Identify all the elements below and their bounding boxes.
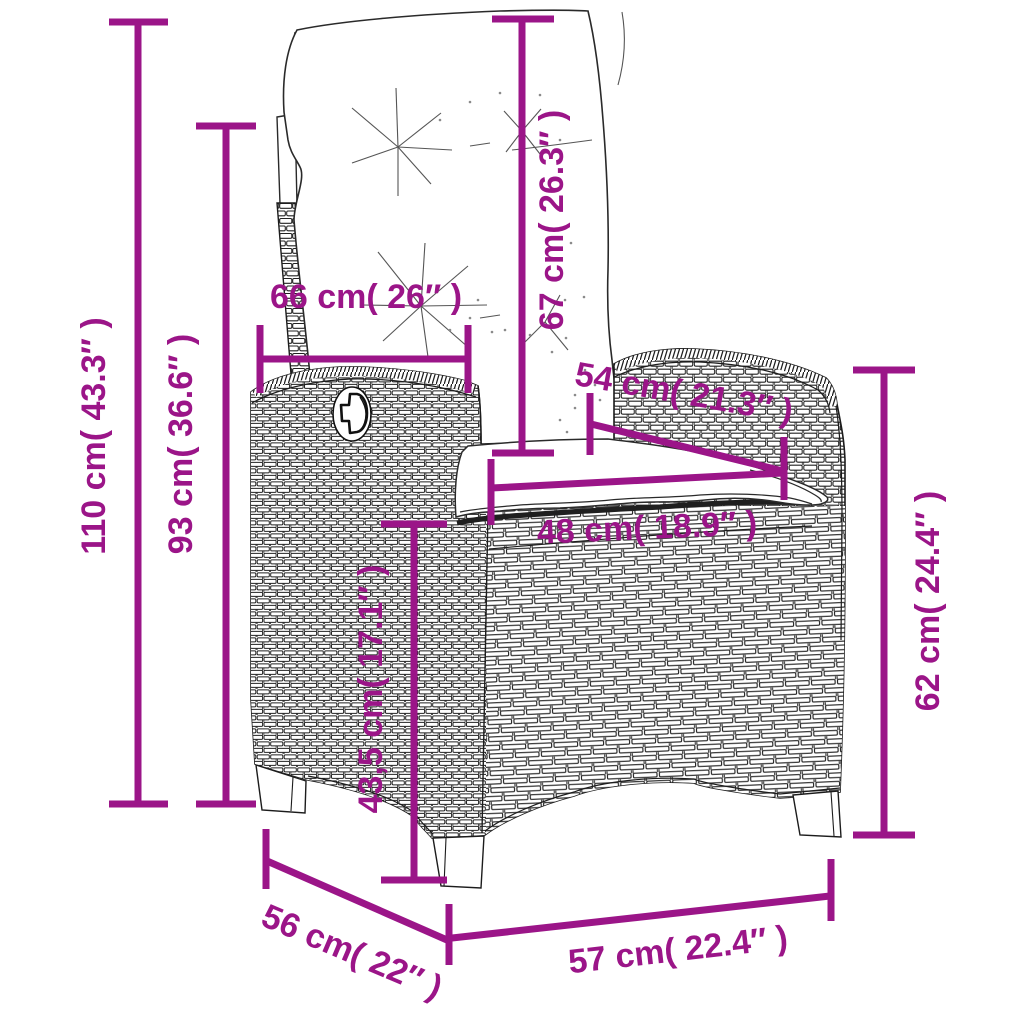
svg-text:93 cm( 36.6″ ): 93 cm( 36.6″ ) [162, 334, 200, 554]
svg-text:110 cm( 43.3″ ): 110 cm( 43.3″ ) [75, 317, 113, 554]
svg-text:67 cm( 26.3″ ): 67 cm( 26.3″ ) [533, 110, 571, 330]
svg-text:57 cm( 22.4″ ): 57 cm( 22.4″ ) [566, 919, 789, 982]
svg-text:62 cm( 24.4″ ): 62 cm( 24.4″ ) [909, 491, 947, 711]
svg-text:43,5 cm( 17.1″ ): 43,5 cm( 17.1″ ) [352, 565, 390, 814]
svg-text:66 cm( 26″ ): 66 cm( 26″ ) [270, 278, 462, 316]
svg-text:56 cm( 22″ ): 56 cm( 22″ ) [256, 897, 448, 1007]
